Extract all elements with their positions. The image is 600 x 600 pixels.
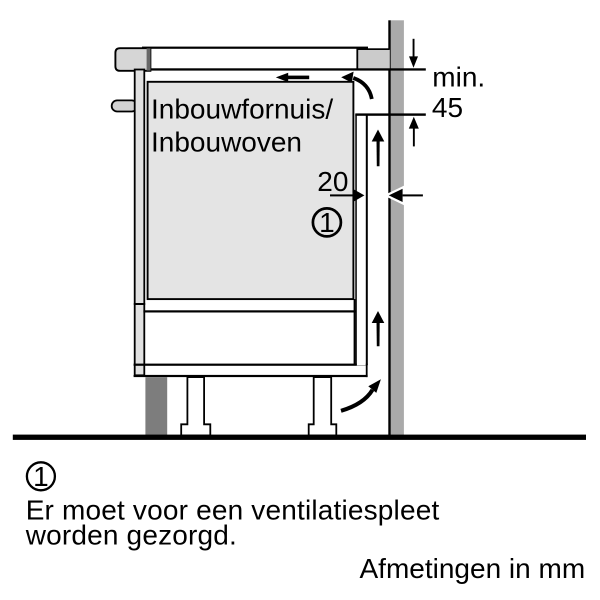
svg-text:Inbouwoven: Inbouwoven [151, 126, 302, 157]
svg-text:min.: min. [432, 61, 485, 92]
svg-text:1: 1 [319, 207, 335, 238]
svg-text:45: 45 [432, 92, 463, 123]
svg-text:Inbouwfornuis/: Inbouwfornuis/ [151, 94, 333, 125]
svg-text:1: 1 [33, 461, 49, 492]
svg-text:worden gezorgd.: worden gezorgd. [25, 520, 237, 551]
svg-text:Afmetingen in mm: Afmetingen in mm [360, 553, 586, 584]
svg-text:20: 20 [317, 166, 348, 197]
